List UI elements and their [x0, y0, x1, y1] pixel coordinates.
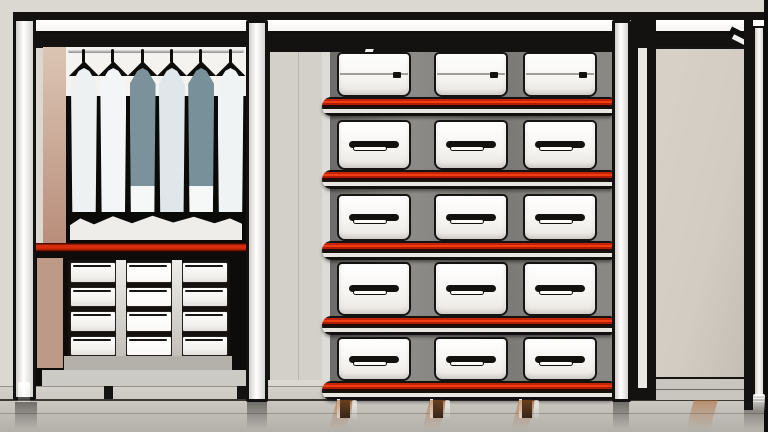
- shelf-side-panel: [268, 48, 322, 380]
- closet-scene: [0, 0, 768, 432]
- box-latch: [490, 72, 498, 78]
- drawer-handle: [185, 339, 224, 341]
- frame-post-middle: [246, 20, 268, 402]
- floor-glint: [534, 400, 539, 420]
- shirt-cuff: [130, 186, 156, 212]
- unit-foot: [104, 386, 113, 399]
- storage-box: [337, 194, 411, 241]
- drawer-handle: [129, 339, 168, 341]
- shelf: [322, 241, 612, 260]
- drawer-handle: [185, 265, 224, 267]
- drawer: [126, 262, 172, 283]
- shirt-body: [100, 68, 126, 212]
- drawer: [182, 262, 228, 283]
- box-handle-pull: [539, 290, 573, 295]
- shirt-body: [71, 68, 97, 212]
- box-handle-pull: [450, 290, 484, 295]
- shelf: [322, 381, 612, 400]
- storage-box: [434, 52, 508, 97]
- box-handle-pull: [353, 361, 387, 366]
- drawer: [182, 311, 228, 332]
- shirt-body: [159, 68, 185, 212]
- shirt-body: [188, 68, 214, 212]
- floor-glint: [753, 394, 765, 412]
- drawer: [70, 336, 116, 357]
- drawer-handle: [73, 290, 112, 292]
- back-panel: [656, 47, 744, 377]
- box-handle-pull: [353, 146, 387, 151]
- left-closet-unit: [13, 12, 268, 402]
- upper-side-panel: [43, 47, 66, 243]
- box-latch: [579, 72, 587, 78]
- drawer-grid: [70, 262, 228, 356]
- lower-compartment: [36, 252, 248, 386]
- shelf: [322, 170, 612, 189]
- drawer-handle: [73, 314, 112, 316]
- storage-box: [523, 337, 597, 381]
- box-handle-pull: [353, 290, 387, 295]
- side-panel-seam: [298, 48, 299, 380]
- hanger-hook: [141, 49, 144, 63]
- floor-reflection: [247, 402, 267, 429]
- shelf: [322, 97, 612, 116]
- shirt: [71, 52, 97, 212]
- floor-glint: [352, 400, 357, 420]
- storage-box: [337, 120, 411, 170]
- screen-right-edge: [764, 0, 768, 432]
- drawer: [126, 311, 172, 332]
- drawer: [126, 287, 172, 308]
- storage-box: [337, 262, 411, 316]
- storage-box: [523, 262, 597, 316]
- storage-box: [523, 120, 597, 170]
- box-handle-pull: [539, 361, 573, 366]
- baseboard-line: [656, 389, 744, 390]
- hanging-rack: [66, 47, 246, 243]
- storage-box: [434, 120, 508, 170]
- floor-glint: [18, 382, 30, 404]
- storage-box: [523, 194, 597, 241]
- box-handle-pull: [353, 219, 387, 224]
- storage-box: [523, 52, 597, 97]
- drawer-handle: [73, 339, 112, 341]
- box-handle-pull: [450, 361, 484, 366]
- shelf-unit: [268, 18, 632, 402]
- drawer-handle: [185, 314, 224, 316]
- storage-box: [434, 194, 508, 241]
- drawer-chest: [68, 260, 230, 358]
- drawer-handle: [129, 314, 168, 316]
- drawer: [126, 336, 172, 357]
- drawer: [182, 336, 228, 357]
- shelf-top-band: [268, 33, 632, 52]
- shirt: [188, 52, 214, 212]
- frame-post-right: [612, 20, 631, 402]
- floor-reflection: [613, 402, 629, 429]
- frame-slit: [638, 48, 647, 388]
- unit-foot: [237, 386, 246, 399]
- drawer: [182, 287, 228, 308]
- lit-back-wall: [70, 213, 242, 240]
- plinth-step: [42, 370, 250, 386]
- shirt-cuff: [188, 186, 214, 212]
- box-handle-pull: [539, 219, 573, 224]
- hanger-hook: [170, 49, 173, 63]
- shirt-body: [130, 68, 156, 212]
- box-latch: [393, 72, 401, 78]
- storage-box: [434, 337, 508, 381]
- drawer-handle: [129, 265, 168, 267]
- shirt: [130, 52, 156, 212]
- shirt-body: [218, 68, 244, 212]
- red-rail-left: [36, 243, 250, 252]
- shirt: [100, 52, 126, 212]
- hanger-hook: [229, 49, 232, 63]
- drawer-handle: [129, 290, 168, 292]
- drawer-handle: [73, 265, 112, 267]
- floor-line: [0, 413, 768, 414]
- floor-reflection: [15, 402, 37, 429]
- floor-glint: [445, 400, 450, 420]
- storage-box: [337, 337, 411, 381]
- drawer: [70, 262, 116, 283]
- storage-box: [434, 262, 508, 316]
- hanger-hook: [82, 49, 85, 63]
- right-door-frame: [744, 12, 753, 410]
- box-handle-pull: [539, 146, 573, 151]
- lower-side-panel: [37, 258, 63, 368]
- shelf: [322, 316, 612, 335]
- box-handle-pull: [450, 219, 484, 224]
- hanger-hook: [111, 49, 114, 63]
- frame-post-left: [13, 18, 36, 400]
- drawer-handle: [185, 290, 224, 292]
- shirt: [218, 52, 244, 212]
- drawer: [70, 311, 116, 332]
- shirt: [159, 52, 185, 212]
- drawer: [70, 287, 116, 308]
- hanger-hook: [199, 49, 202, 63]
- storage-box: [337, 52, 411, 97]
- box-handle-pull: [450, 146, 484, 151]
